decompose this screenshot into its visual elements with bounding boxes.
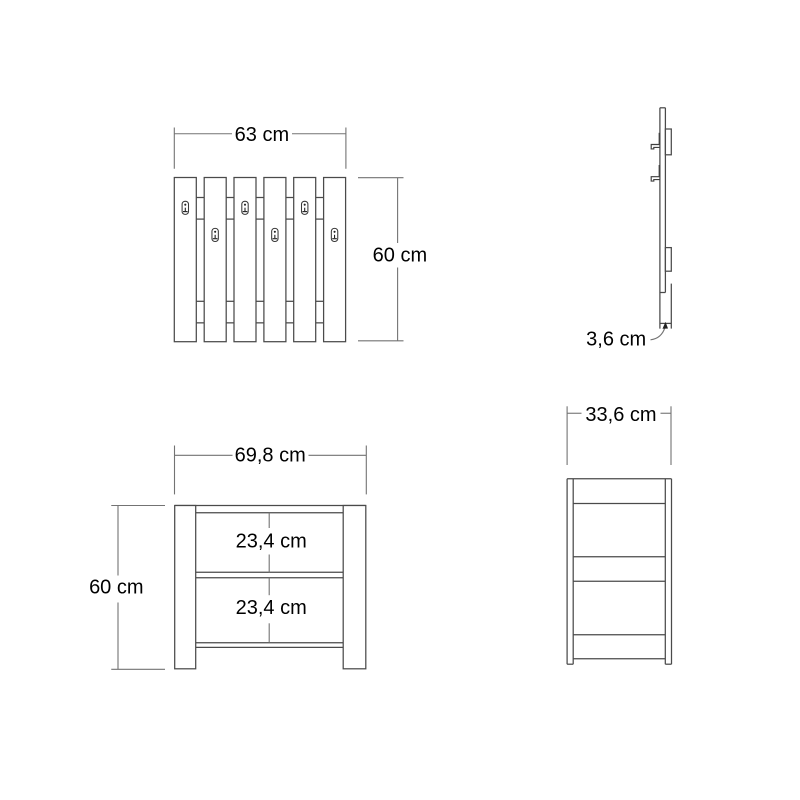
svg-text:63 cm: 63 cm	[235, 124, 289, 146]
svg-text:3,6 cm: 3,6 cm	[586, 329, 646, 351]
svg-text:60 cm: 60 cm	[373, 245, 427, 267]
svg-text:60 cm: 60 cm	[89, 576, 143, 598]
svg-text:23,4 cm: 23,4 cm	[236, 597, 307, 619]
svg-text:33,6 cm: 33,6 cm	[585, 404, 656, 426]
svg-text:69,8 cm: 69,8 cm	[235, 444, 306, 466]
svg-text:23,4 cm: 23,4 cm	[236, 530, 307, 552]
